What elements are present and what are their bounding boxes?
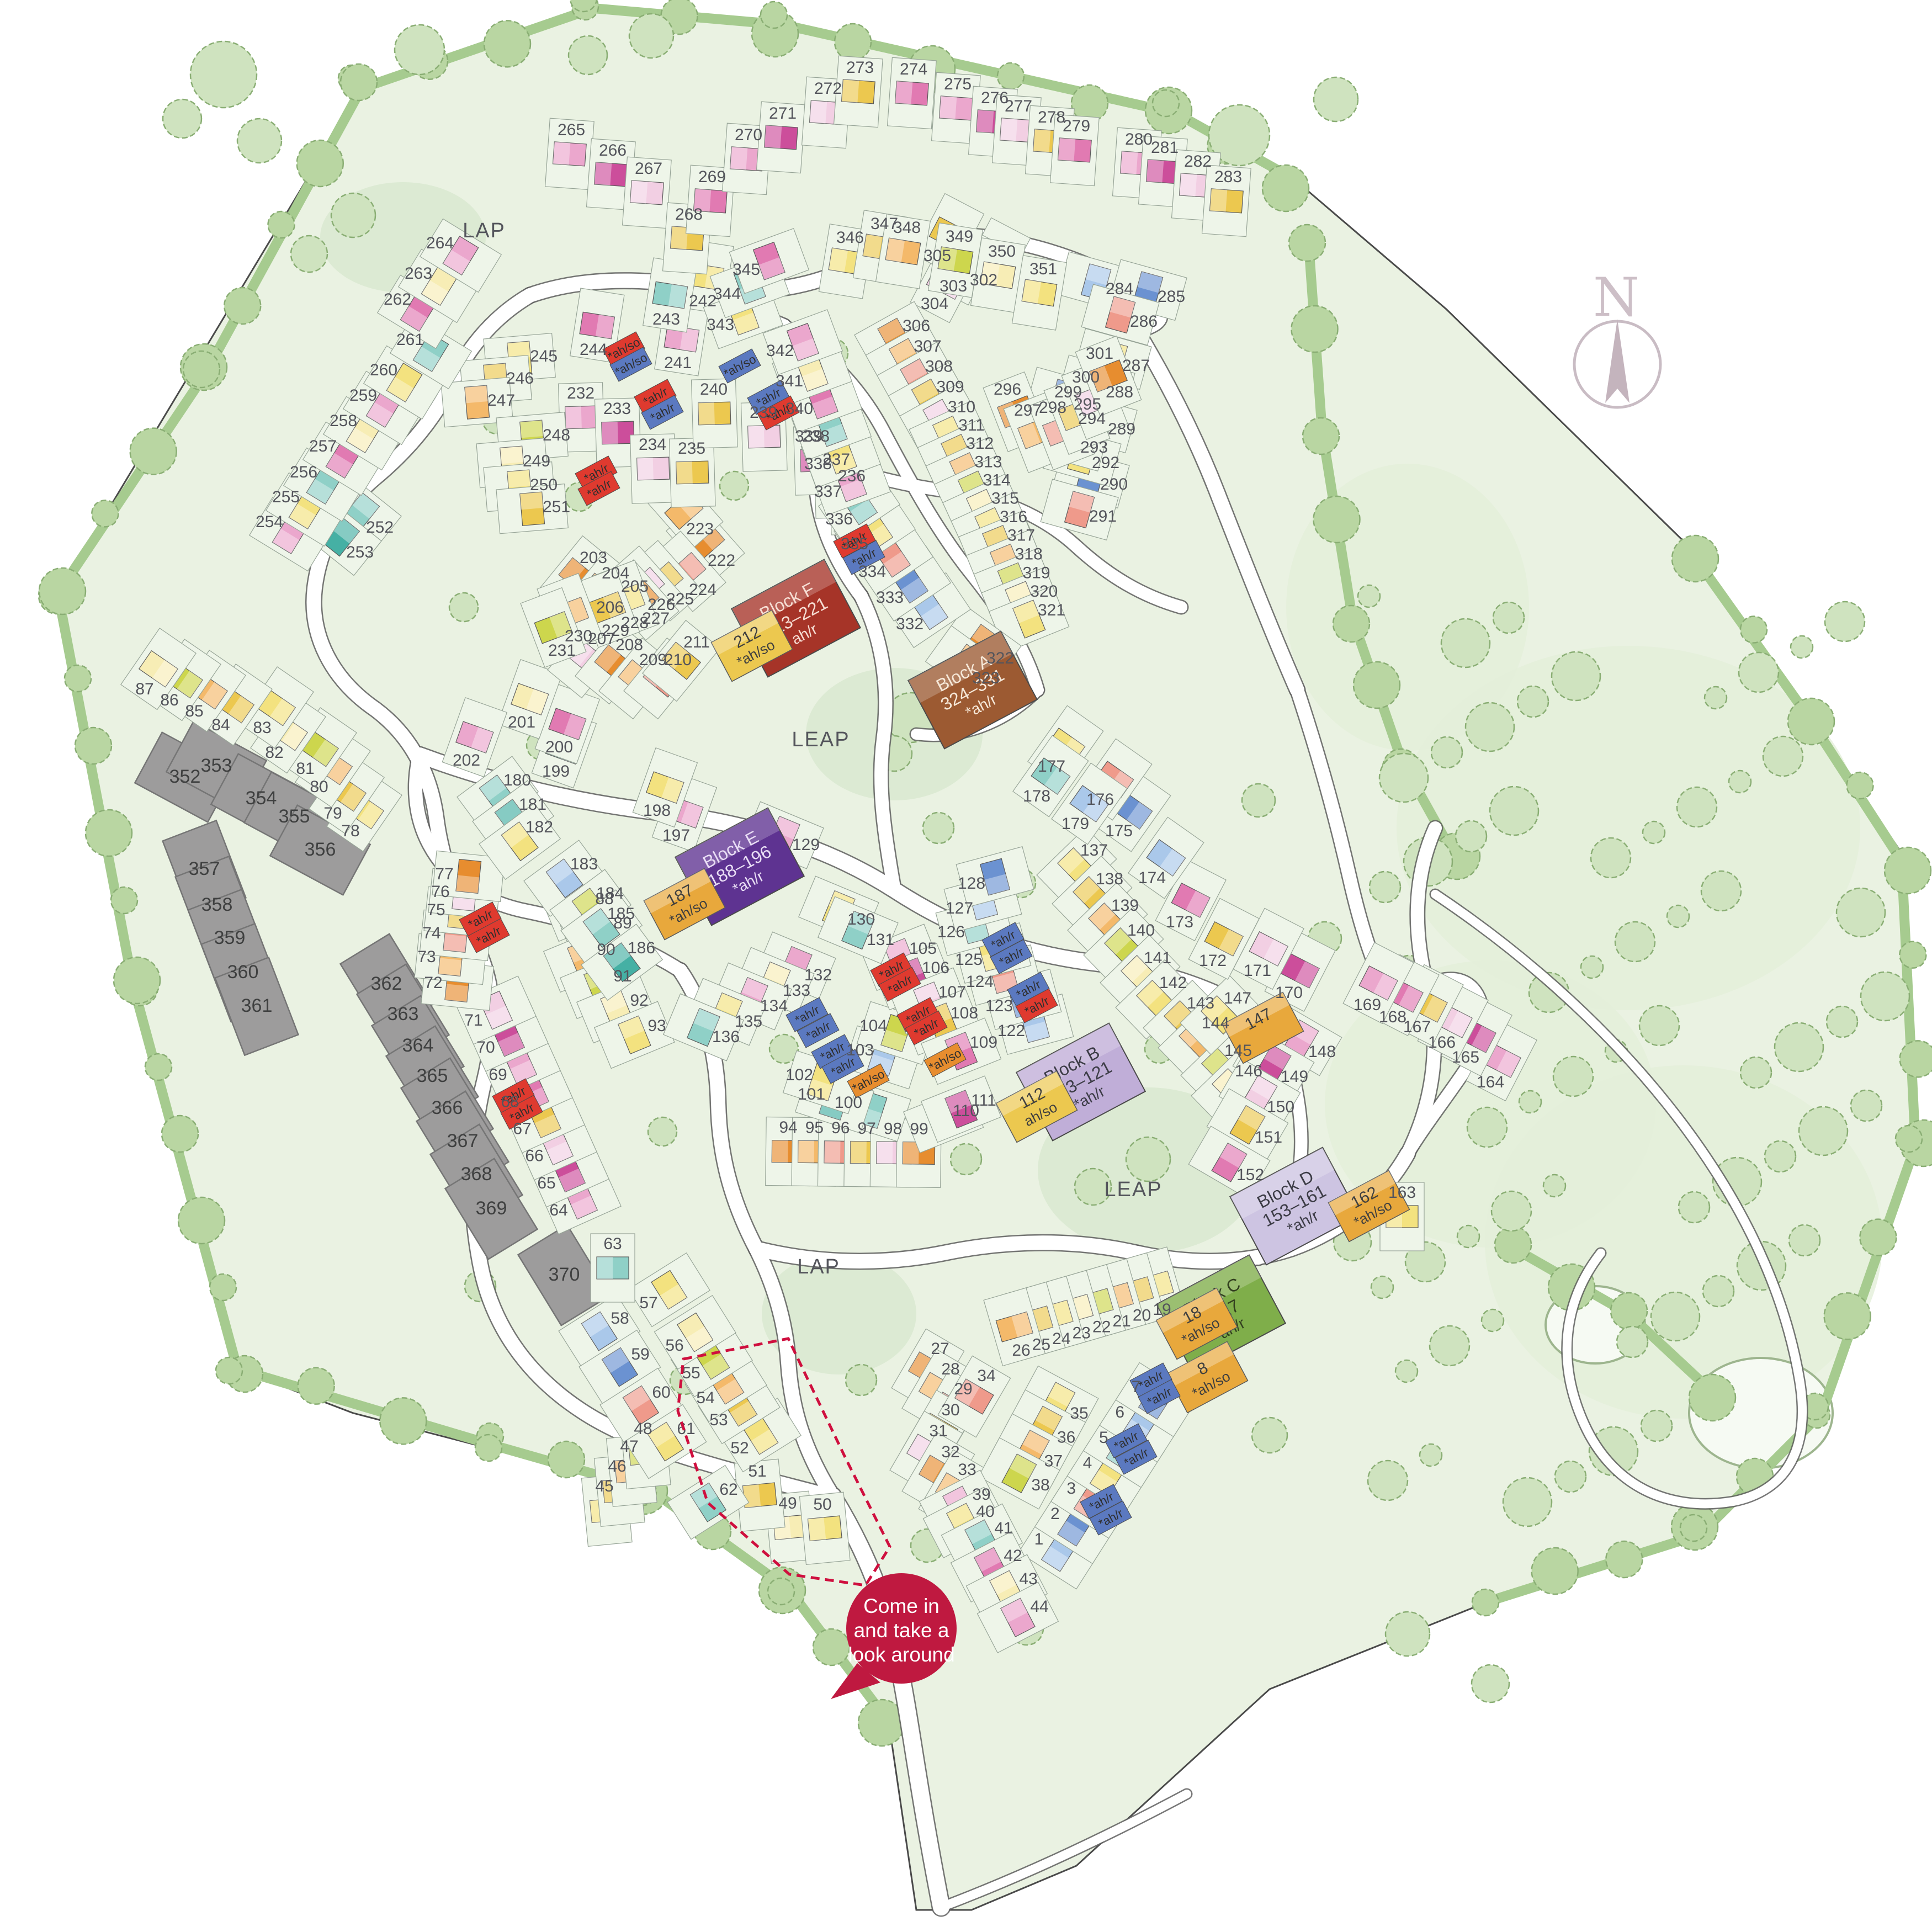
plot-number-label: 140 [1127,921,1155,940]
plot-number-label: 176 [1086,790,1114,809]
plot-number-label: 366 [432,1097,463,1118]
welcome-badge-line1: Come in [863,1595,940,1617]
plot-number-label: 28 [941,1360,959,1378]
plot-number-label: 206 [596,598,624,617]
plot-number-label: 55 [682,1364,700,1382]
plot-number-label: 167 [1403,1018,1431,1036]
plot-number-label: 181 [519,795,546,814]
plot-number-label: 275 [944,75,972,93]
plot-number-label: 344 [713,285,741,303]
plot-number-label: 202 [453,751,480,769]
plot-number-label: 79 [323,804,342,822]
plot-number-label: 310 [948,398,975,416]
plot-number-label: 152 [1236,1166,1264,1184]
plot-number-label: 164 [1477,1073,1504,1091]
plot-number-label: 360 [227,962,259,983]
plot-number-label: 81 [296,760,314,778]
plot-number-label: 6 [1115,1403,1124,1421]
plot-number-label: 255 [272,488,300,506]
plot-number-label: 90 [597,941,615,959]
plot-number-label: 312 [966,434,994,453]
plot-number-label: 222 [708,551,735,570]
plot-number-label: 336 [825,510,853,528]
plot-number-label: 265 [558,121,585,139]
plot-number-label: 42 [1004,1547,1022,1565]
plot-number-label: 39 [972,1485,990,1504]
plot-number-label: 137 [1080,841,1108,859]
plot-number-label: 318 [1015,545,1043,564]
plot-number-label: 74 [422,924,440,942]
plot-number-label: 322 [986,649,1014,667]
plot-number-label: 80 [310,778,328,796]
plot-number-label: 342 [766,342,794,360]
plot-number-label: 337 [814,482,842,501]
plot-number-label: 272 [814,79,842,98]
plot-number-label: 136 [712,1028,740,1046]
plot-number-label: 150 [1267,1098,1294,1116]
plot-number-label: 248 [543,426,570,444]
plot-number-label: 211 [683,633,710,651]
plot-number-label: 293 [1080,438,1108,457]
plot-number-label: 277 [1005,97,1032,115]
plot-number-label: 30 [941,1401,959,1419]
plot-number-label: 95 [805,1119,824,1137]
plot-number-label: 332 [896,615,923,633]
plot-number-label: 35 [1070,1404,1088,1423]
plot-number-label: 43 [1019,1570,1037,1588]
plot-number-label: 124 [966,973,994,991]
compass-needle-icon [1605,319,1630,403]
plot-number-label: 271 [769,104,797,123]
leap-label-2: LEAP [1104,1178,1162,1201]
plot-number-label: 357 [189,858,220,879]
plot-number-label: 335 [841,535,868,553]
plot-number-label: 367 [447,1130,479,1151]
plot-number-label: 232 [567,384,595,402]
plot-number-label: 339 [795,427,822,445]
plot-number-label: 247 [487,391,515,410]
plot-number-label: 341 [776,372,803,390]
plot-number-label: 369 [476,1198,507,1219]
plot-number-label: 151 [1255,1128,1282,1147]
plot-number-label: 75 [427,901,445,919]
welcome-badge-line2: and take a [854,1619,949,1642]
plot-number-label: 353 [201,755,232,776]
plot-number-label: 358 [201,894,233,915]
plot-number-label: 301 [1086,344,1113,363]
plot-number-label: 1 [1034,1530,1044,1548]
plot-number-label: 315 [991,490,1019,508]
plot-number-label: 101 [798,1085,825,1103]
plot-number-label: 306 [903,317,930,335]
plot-number-label: 175 [1105,822,1133,840]
plot-number-label: 7 [1132,1378,1141,1396]
plot-number-label: 127 [946,899,973,917]
plot-number-label: 254 [256,513,283,531]
plot-number-label: 323 [972,669,1000,687]
plot-number-label: 180 [503,771,531,789]
plot-number-label: 269 [698,168,726,186]
plot-number-label: 242 [689,292,716,310]
plot-number-label: 141 [1144,949,1171,967]
plot-number-label: 174 [1138,869,1166,887]
site-plan-svg: Block E188–196*ah/rBlock B113–121*ah/rBl… [0,0,1932,1932]
plot-number-label: 60 [652,1383,670,1402]
plot-number-label: 96 [831,1119,850,1137]
plot-number-label: 62 [719,1480,737,1499]
plot-number-label: 36 [1057,1428,1075,1446]
plot-number-label: 29 [954,1380,972,1398]
plot-number-label: 46 [608,1457,626,1475]
plot-number-label: 179 [1061,815,1089,833]
plot-number-label: 144 [1202,1014,1229,1032]
plot-number-label: 285 [1158,288,1185,306]
plot-number-label: 3 [1066,1479,1076,1498]
plot-number-label: 139 [1111,896,1139,915]
plot-number-label: 58 [611,1309,629,1328]
plot-number-label: 23 [1073,1324,1091,1342]
plot-number-label: 283 [1214,168,1242,186]
plot-number-label: 364 [402,1035,434,1056]
plot-number-label: 246 [506,369,534,388]
plot-number-label: 94 [779,1118,797,1137]
plot-number-label: 128 [958,874,985,893]
plot-number-label: 65 [537,1174,555,1192]
plot-number-label: 365 [417,1065,448,1086]
plot-number-label: 170 [1275,984,1303,1002]
plot-number-label: 270 [735,126,762,144]
plot-number-label: 177 [1038,757,1065,776]
plot-number-label: 53 [709,1411,728,1429]
plot-number-label: 274 [900,60,927,78]
plot-number-label: 105 [909,940,937,958]
plot-number-label: 147 [1224,989,1251,1007]
plot-number-label: 281 [1151,139,1179,157]
plot-number-label: 106 [922,959,949,977]
plot-number-label: 66 [525,1147,543,1165]
plot-number-label: 76 [431,883,449,901]
plot-number-label: 346 [836,229,864,247]
plot-number-label: 77 [435,865,453,883]
plot-number-label: 20 [1133,1307,1151,1325]
plot-number-label: 291 [1089,507,1117,526]
plot-number-label: 93 [647,1017,666,1035]
plot-number-label: 260 [370,361,397,379]
plot-number-label: 99 [910,1120,928,1138]
plot-number-label: 249 [523,452,550,470]
plot-number-label: 59 [631,1345,649,1363]
plot-number-label: 21 [1112,1312,1130,1330]
plot-number-label: 165 [1452,1048,1479,1066]
plot-number-label: 300 [1072,368,1100,386]
plot-number-label: 245 [530,347,558,365]
plot-number-label: 350 [988,242,1016,261]
plot-number-label: 49 [778,1494,797,1512]
plot-number-label: 278 [1038,108,1065,126]
plot-number-label: 100 [835,1094,862,1112]
plot-number-label: 257 [309,437,337,455]
plot-number-label: 163 [1388,1183,1416,1202]
plot-number-label: 33 [958,1461,976,1479]
plot-number-label: 54 [696,1389,714,1407]
plot-number-label: 209 [639,651,667,669]
plot-number-label: 146 [1235,1062,1262,1080]
plot-number-label: 82 [265,744,283,762]
plot-number-label: 244 [580,341,607,359]
plot-number-label: 259 [349,386,377,405]
plot-number-label: 38 [1031,1476,1049,1494]
plot-number-label: 343 [707,316,734,334]
plot-number-label: 321 [1038,601,1065,619]
compass: N [1574,267,1660,407]
plot-number-label: 313 [974,453,1002,471]
plot-number-label: 266 [599,141,627,160]
plot-number-label: 354 [246,788,277,809]
plot-number-label: 168 [1379,1008,1406,1026]
plot-number-label: 142 [1159,974,1187,992]
plot-number-label: 41 [994,1519,1012,1537]
plot-number-label: 338 [804,455,832,473]
plot-number-label: 67 [513,1120,531,1138]
plot-number-label: 123 [985,997,1013,1015]
plot-number-label: 47 [620,1437,638,1456]
plot-number-label: 361 [241,995,273,1016]
plot-number-label: 319 [1022,564,1050,582]
plot-number-label: 145 [1224,1042,1252,1060]
plot-number-label: 348 [893,219,921,237]
plot-number-label: 45 [595,1477,613,1495]
plot-number-label: 241 [664,354,692,372]
plot-number-label: 236 [838,467,866,485]
plot-number-label: 131 [867,931,894,949]
plot-number-label: 363 [388,1004,419,1025]
plot-number-label: 263 [405,264,432,283]
plot-number-label: 184 [596,884,624,903]
plot-number-label: 148 [1308,1043,1336,1061]
plot-number-label: 86 [160,691,178,709]
plot-number-label: 27 [931,1340,949,1358]
plot-number-label: 368 [461,1164,492,1185]
plot-number-label: 19 [1153,1301,1171,1319]
plot-number-label: 85 [185,702,203,720]
plot-number-label: 52 [730,1439,749,1457]
plot-number-label: 107 [938,983,966,1001]
plot-number-label: 234 [639,436,666,454]
plot-number-label: 129 [792,836,820,854]
plot-number-label: 71 [464,1011,482,1029]
plot-number-label: 307 [914,337,941,355]
plot-number-label: 205 [621,577,649,596]
plot-number-label: 303 [940,277,967,295]
plot-number-label: 340 [785,400,813,418]
site-plan-map: Block E188–196*ah/rBlock B113–121*ah/rBl… [0,0,1932,1932]
plot-number-label: 355 [279,806,310,827]
plot-number-label: 130 [847,910,875,928]
plot-number-label: 57 [639,1294,657,1312]
plot-number-label: 149 [1281,1068,1308,1086]
plot-number-label: 25 [1032,1335,1050,1354]
plot-number-label: 102 [785,1066,813,1084]
plot-number-label: 268 [675,205,703,224]
plot-number-label: 197 [662,826,690,845]
plot-number-label: 44 [1030,1597,1048,1616]
plot-number-label: 201 [508,713,535,731]
plot-number-label: 316 [1000,508,1027,526]
plot-number-label: 352 [169,766,201,787]
plot-number-label: 231 [548,641,576,660]
plot-number-label: 84 [211,716,230,734]
plot-number-label: 2 [1050,1505,1060,1523]
plot-number-label: 334 [858,562,886,581]
plot-number-label: 362 [371,973,402,994]
plot-number-label: 173 [1166,913,1193,931]
plot-number-label: 98 [884,1119,902,1138]
plot-number-label: 349 [946,227,973,246]
plot-number-label: 63 [603,1235,622,1253]
plot-number-label: 200 [545,738,573,756]
plot-number-label: 317 [1007,527,1035,545]
plot-number-label: 229 [602,622,629,640]
plot-number-label: 273 [846,59,874,77]
plot-number-label: 262 [384,290,411,309]
plot-number-label: 302 [970,271,997,289]
plot-number-label: 24 [1052,1330,1070,1348]
plot-number-label: 351 [1029,260,1057,278]
plot-number-label: 282 [1184,152,1212,171]
plot-number-label: 251 [543,498,570,516]
plot-number-label: 73 [417,948,436,966]
plot-number-label: 289 [1108,420,1135,438]
plot-number-label: 97 [858,1119,876,1138]
welcome-badge-line3: look around [848,1643,954,1666]
plot-number-label: 5 [1099,1429,1108,1447]
plot-number-label: 92 [630,991,648,1010]
lap-label-1: LAP [463,219,506,242]
plot-number-label: 182 [526,818,553,836]
plot-number-label: 104 [859,1017,887,1035]
plot-number-label: 305 [923,247,951,265]
plot-number-label: 288 [1106,383,1133,401]
plot-number-label: 83 [253,719,271,737]
plot-number-label: 320 [1030,582,1058,601]
plot-number-label: 250 [530,476,558,494]
plot-number-label: 111 [971,1091,996,1110]
plot-number-label: 68 [501,1092,519,1111]
plot-number-label: 186 [628,939,655,957]
plot-number-label: 267 [635,160,662,178]
plot-number-label: 280 [1125,130,1153,148]
plot-number-label: 122 [997,1022,1025,1040]
plot-number-label: 309 [936,378,964,396]
plot-number-label: 61 [677,1420,695,1438]
plot-number-label: 78 [341,822,359,840]
plot-number-label: 22 [1092,1318,1111,1336]
plot-number-label: 183 [570,855,598,873]
plot-number-label: 34 [977,1367,995,1385]
plot-number-label: 261 [396,331,424,349]
plot-number-label: 223 [686,520,714,538]
plot-number-label: 87 [135,680,153,698]
plot-number-label: 64 [549,1201,567,1219]
plot-number-label: 284 [1106,280,1133,298]
plot-number-label: 70 [476,1038,495,1057]
plot-number-label: 356 [305,839,336,860]
plot-number-label: 235 [678,439,705,458]
plot-number-label: 103 [846,1041,874,1059]
plot-number-label: 143 [1187,994,1214,1012]
plot-number-label: 286 [1130,312,1158,331]
plot-number-label: 50 [813,1495,831,1514]
plot-number-label: 51 [748,1462,766,1480]
plot-number-label: 240 [700,380,728,399]
plot-number-label: 370 [549,1264,580,1285]
plot-number-label: 125 [955,951,983,969]
plot-number-label: 252 [366,518,394,537]
plot-number-label: 40 [976,1503,994,1521]
plot-number-label: 359 [214,927,246,948]
plot-number-label: 26 [1012,1341,1030,1360]
plot-number-label: 308 [925,358,953,376]
plot-number-label: 31 [929,1422,947,1440]
plot-number-label: 297 [1014,401,1042,420]
plot-number-label: 345 [733,261,760,279]
compass-north-label: N [1593,267,1639,328]
plot-number-label: 134 [760,997,788,1015]
plot-number-label: 178 [1023,787,1050,805]
plot-number-label: 233 [603,400,631,418]
plot-number-label: 198 [643,802,671,820]
plot-number-label: 169 [1354,996,1381,1014]
plot-number-label: 199 [542,762,570,781]
plot-number-label: 56 [665,1336,683,1355]
plot-number-label: 311 [958,416,985,434]
plot-number-label: 4 [1083,1454,1092,1472]
plot-number-label: 32 [941,1443,959,1461]
plot-number-label: 109 [970,1033,997,1052]
plot-number-label: 72 [424,974,442,992]
plot-number-label: 48 [634,1420,652,1438]
plot-number-label: 37 [1044,1452,1063,1471]
leap-label-1: LEAP [792,728,850,751]
plot-number-label: 108 [951,1004,978,1022]
lap-label-2: LAP [797,1255,840,1278]
plot-number-label: 290 [1100,475,1128,493]
plot-number-label: 172 [1199,952,1227,970]
plot-number-label: 253 [346,543,374,561]
plot-number-label: 243 [652,310,680,328]
plot-number-label: 314 [983,471,1011,490]
plot-number-label: 91 [613,967,631,985]
plot-number-label: 256 [290,463,317,481]
plot-number-label: 296 [994,380,1021,399]
plot-number-label: 287 [1122,357,1150,375]
plot-number-label: 171 [1244,962,1271,980]
plot-number-label: 304 [921,295,948,313]
plot-number-label: 185 [607,905,635,923]
plot-number-label: 258 [330,412,357,430]
plot-number-label: 166 [1428,1033,1456,1052]
plot-number-label: 239 [750,404,777,422]
plot-number-label: 69 [489,1065,507,1084]
plot-number-label: 210 [664,651,692,669]
plot-number-label: 126 [937,923,965,941]
plot-number-label: 279 [1063,117,1090,135]
plot-number-label: 264 [426,234,454,252]
plot-number-label: 138 [1096,870,1123,888]
plot-number-label: 333 [876,588,904,607]
